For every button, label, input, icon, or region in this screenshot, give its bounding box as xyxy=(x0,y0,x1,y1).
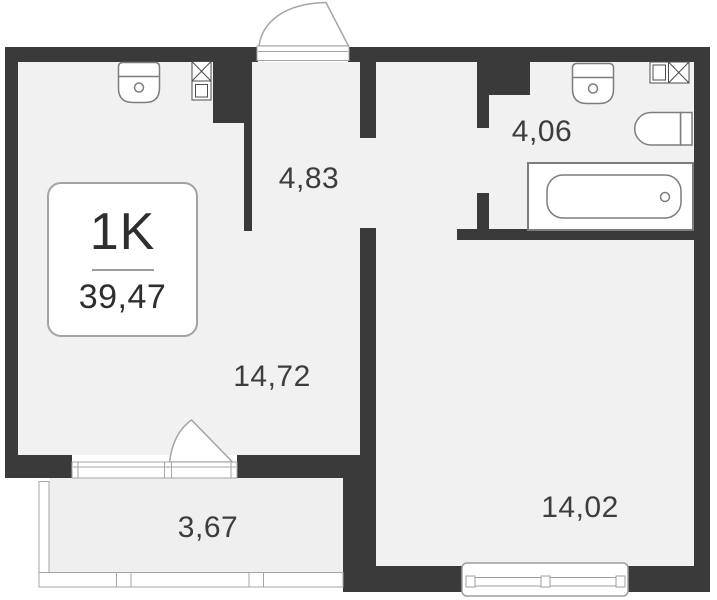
bathroom-sink-icon xyxy=(573,64,614,104)
room-area-label-bedroom: 14,02 xyxy=(541,493,619,523)
wall-hallway-upper xyxy=(360,62,376,138)
wall-balcony-right xyxy=(343,478,376,592)
unit-badge-divider xyxy=(92,269,154,271)
room-area-label-balcony: 3,67 xyxy=(178,513,238,543)
floor-plan: 14,72 4,83 4,06 14,02 3,67 1K 39,47 xyxy=(0,0,717,600)
room-area-label-bathroom: 4,06 xyxy=(512,117,572,147)
entrance-threshold-icon xyxy=(257,46,349,61)
balcony-door-sill-icon xyxy=(72,462,237,478)
wall-kitchen-partition xyxy=(244,123,252,231)
wall-living-bottom-right xyxy=(237,455,376,478)
kitchen-sink-icon xyxy=(119,63,160,103)
wall-top-right xyxy=(348,47,710,62)
wall-left xyxy=(5,47,18,478)
washing-machine-icon xyxy=(650,62,689,83)
floor-bedroom xyxy=(376,455,695,566)
entrance-door-swing-icon xyxy=(259,3,349,47)
wall-bedroom-left xyxy=(360,228,376,455)
unit-info-badge: 1K 39,47 xyxy=(47,182,198,337)
toilet-icon xyxy=(635,113,692,146)
kitchen-appliance-icon xyxy=(192,62,211,101)
room-area-label-hallway: 4,83 xyxy=(279,164,339,194)
bedroom-window-icon xyxy=(462,563,628,596)
bathtub-icon xyxy=(528,163,693,230)
wall-kitchen-pier xyxy=(213,47,252,123)
wall-right xyxy=(694,47,710,592)
wall-living-bottom-left xyxy=(5,455,72,478)
unit-type-label: 1K xyxy=(90,206,156,258)
unit-total-area: 39,47 xyxy=(79,280,167,314)
wall-bathroom-left-upper xyxy=(477,62,489,128)
room-area-label-living-kitchen: 14,72 xyxy=(233,362,311,392)
